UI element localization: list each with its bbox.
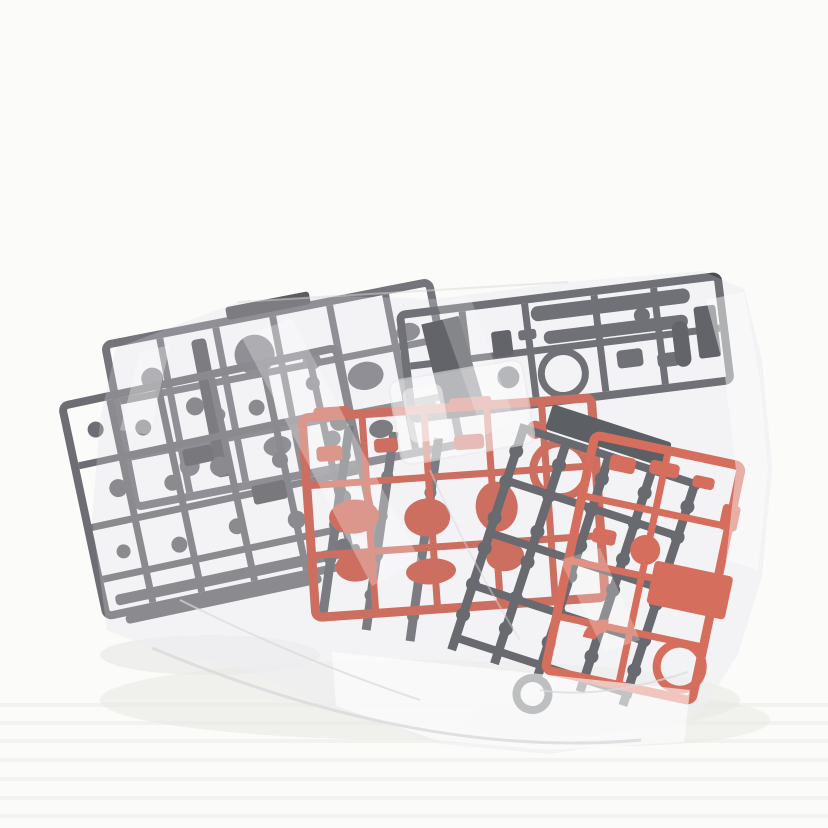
- photo-canvas: [0, 0, 828, 828]
